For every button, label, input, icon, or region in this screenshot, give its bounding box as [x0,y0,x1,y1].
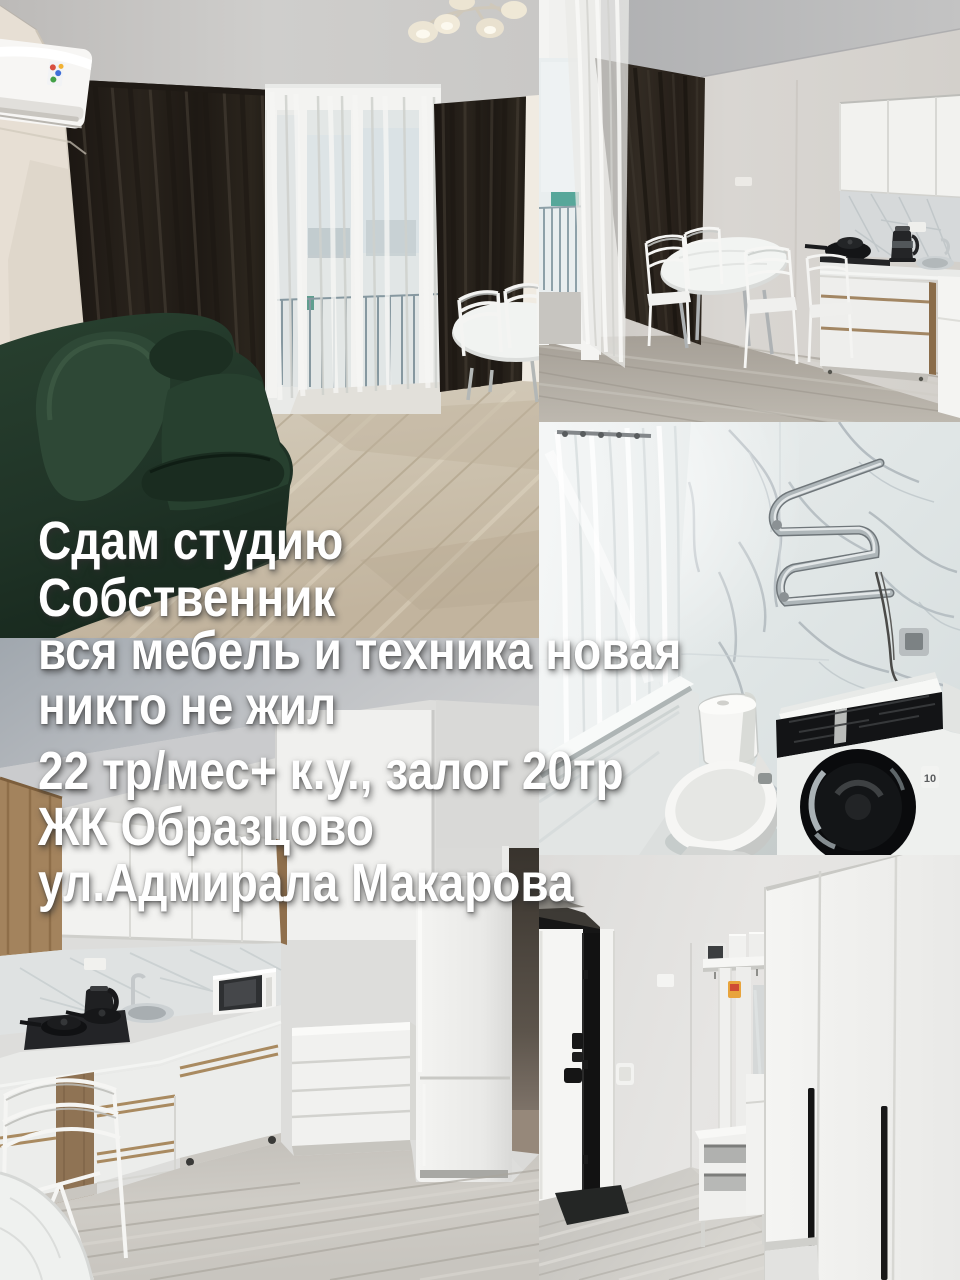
svg-text:10: 10 [924,773,936,785]
